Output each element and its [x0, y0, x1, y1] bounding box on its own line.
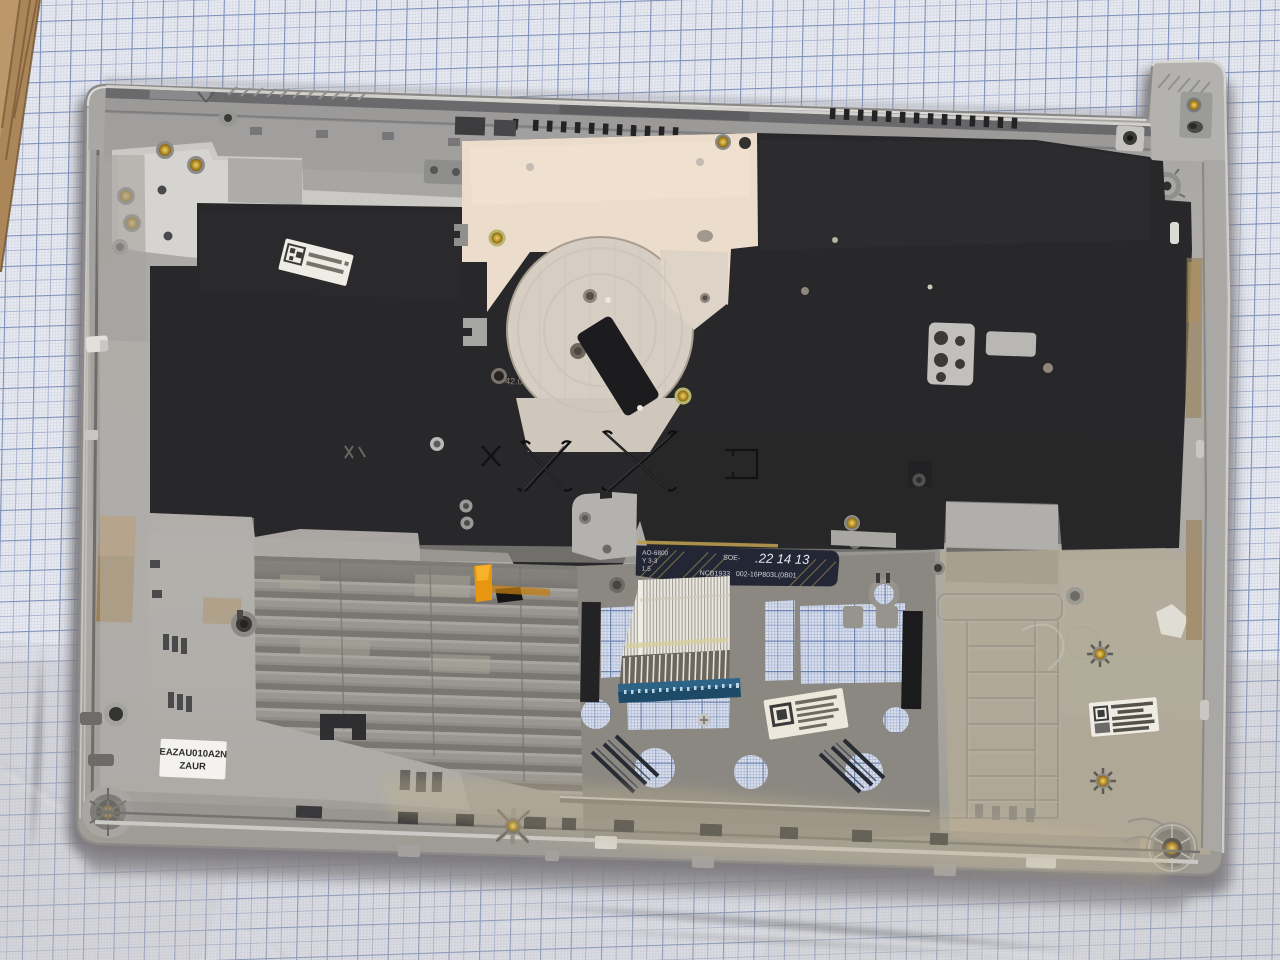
svg-text:1.5: 1.5	[642, 566, 652, 573]
svg-text:ZAUR: ZAUR	[179, 760, 206, 772]
svg-text:AO-6800: AO-6800	[642, 550, 669, 558]
svg-text:SOE-: SOE-	[723, 555, 741, 562]
svg-text:42.0: 42.0	[505, 376, 523, 387]
svg-text:.22 14 13: .22 14 13	[755, 551, 810, 567]
svg-text:Y 3-3: Y 3-3	[642, 558, 658, 565]
